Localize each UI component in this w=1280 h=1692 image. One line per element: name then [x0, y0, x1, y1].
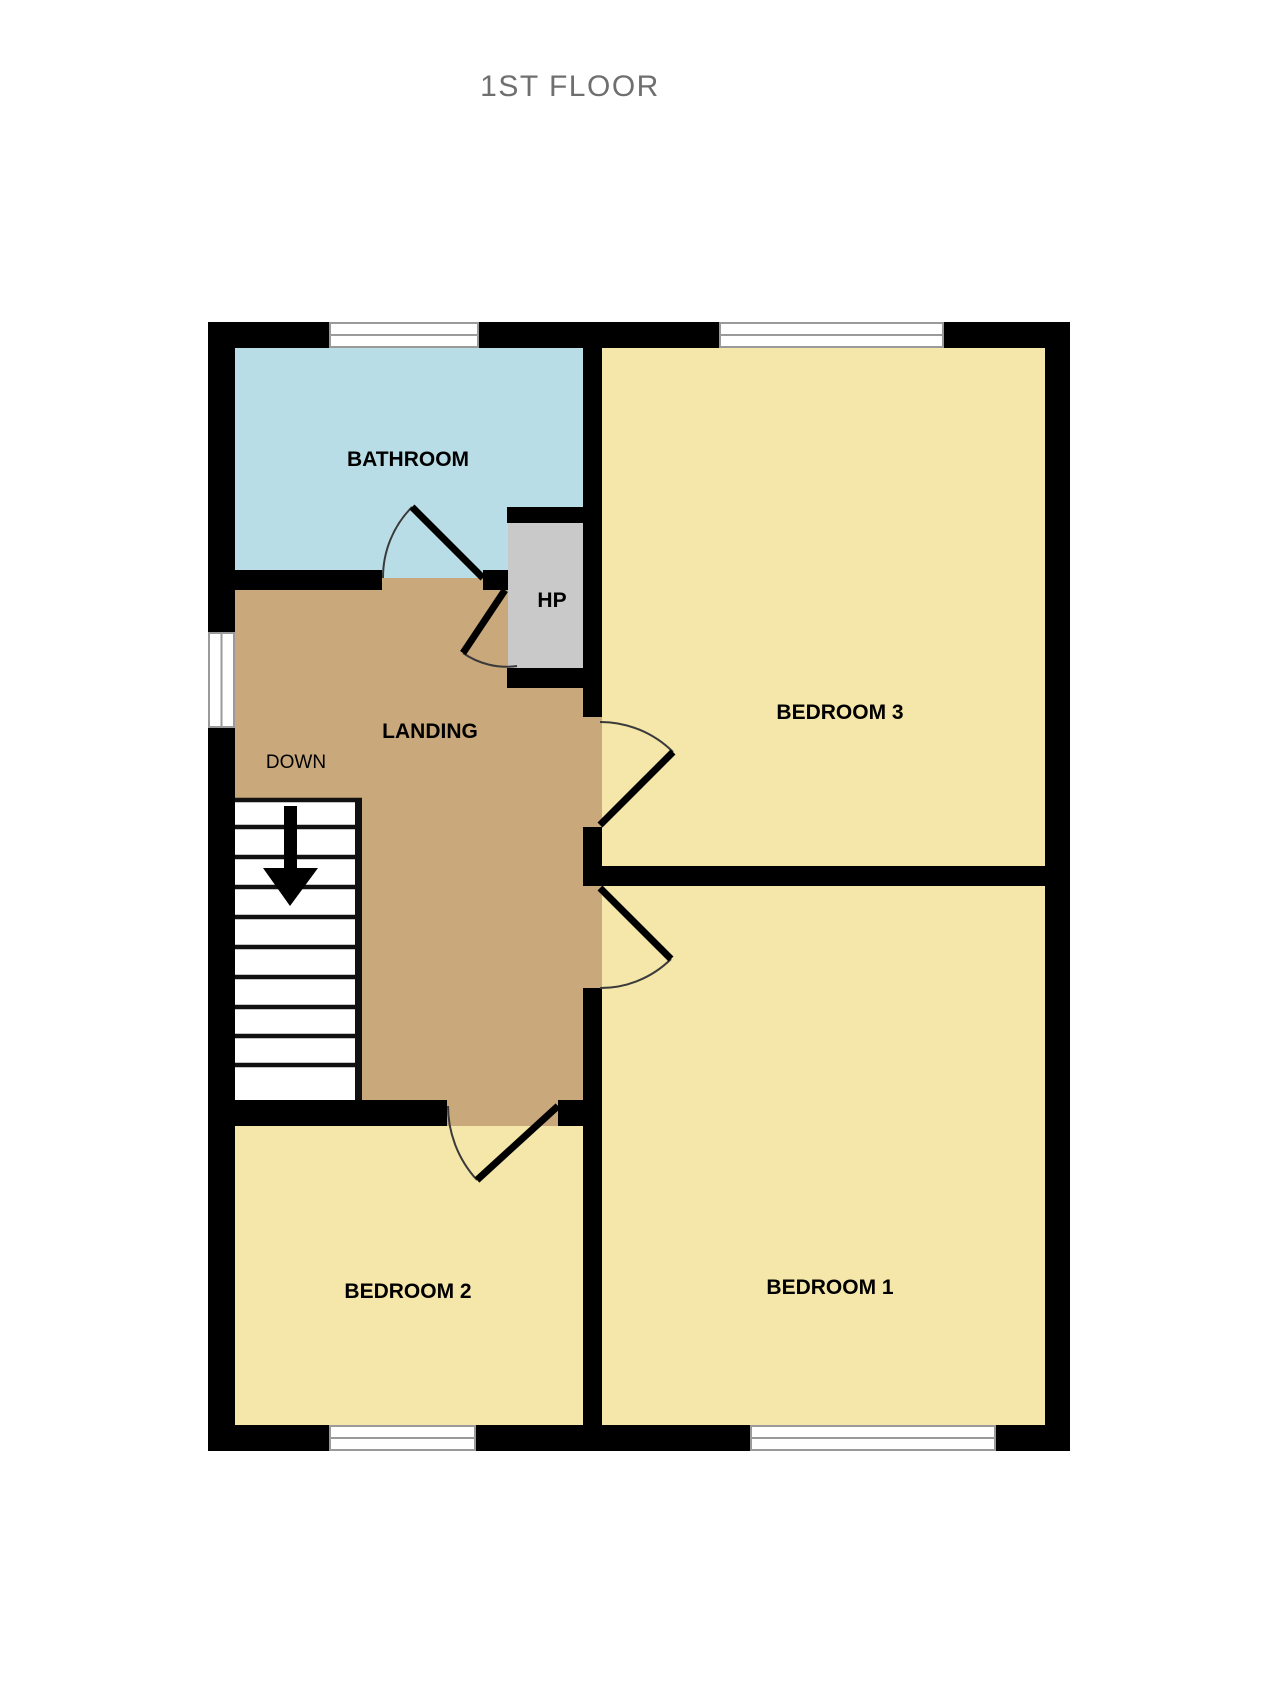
wall-spine-lower: [583, 988, 602, 1425]
label-bedroom-3: BEDROOM 3: [776, 701, 903, 724]
stairs-side-rail: [355, 798, 362, 1100]
wall-hp-bottom: [507, 668, 602, 688]
wall-outer-left: [208, 322, 235, 1451]
wall-spine-upper: [583, 348, 602, 717]
floor-plan-drawing: BATHROOM HP LANDING DOWN BEDROOM 3 BEDRO…: [0, 0, 1280, 1692]
label-landing: LANDING: [382, 720, 478, 743]
window-bedroom1-bottom: [751, 1426, 995, 1450]
label-hp: HP: [537, 589, 566, 612]
wall-hp-top: [507, 507, 602, 523]
wall-bathroom-door-stub: [483, 570, 508, 590]
room-bedroom-1: [602, 886, 1045, 1425]
window-bedroom3-top: [720, 323, 943, 347]
window-bathroom-top: [330, 323, 478, 347]
label-down: DOWN: [266, 752, 326, 773]
wall-bedroom2-top-left: [235, 1100, 447, 1126]
window-landing-left: [209, 633, 234, 727]
stairs: [235, 798, 362, 1100]
wall-outer-right: [1045, 322, 1070, 1451]
wall-bedroom3-bedroom1: [583, 866, 1045, 886]
wall-bedroom2-top-right: [558, 1100, 602, 1126]
window-bedroom2-bottom: [330, 1426, 475, 1450]
room-bedroom-3: [602, 348, 1045, 866]
label-bedroom-1: BEDROOM 1: [766, 1276, 894, 1299]
wall-bathroom-bottom: [235, 570, 382, 590]
floor-plan-page: 1ST FLOOR: [0, 0, 1280, 1692]
label-bathroom: BATHROOM: [347, 448, 469, 471]
room-bedroom-2: [235, 1126, 583, 1425]
label-bedroom-2: BEDROOM 2: [344, 1280, 471, 1303]
